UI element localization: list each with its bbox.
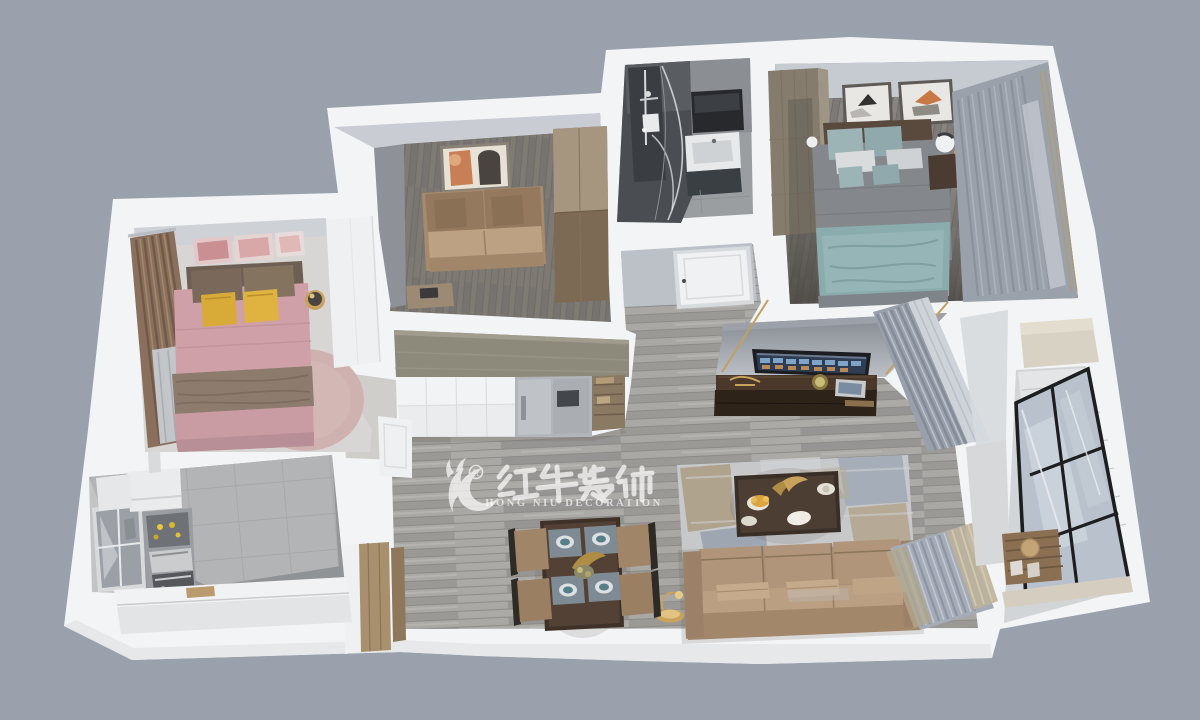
- svg-text:HONG NIU DECORATION: HONG NIU DECORATION: [485, 498, 663, 509]
- svg-text:R: R: [473, 468, 480, 478]
